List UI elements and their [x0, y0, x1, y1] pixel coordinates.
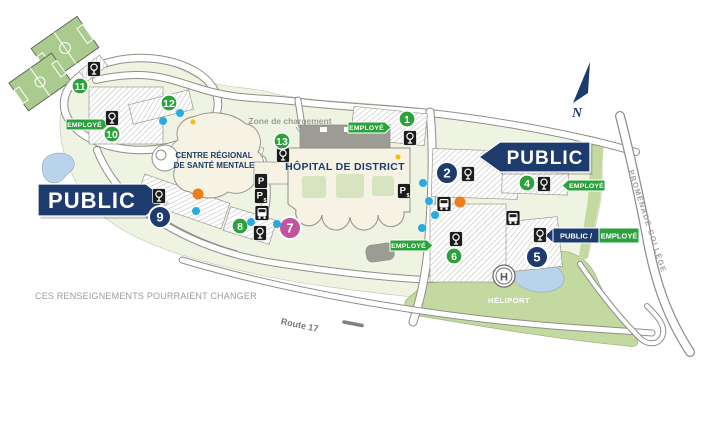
- blue-entrance-dot: [176, 109, 184, 117]
- lot-number: 5: [533, 250, 540, 265]
- parking-meter-icon: [153, 189, 166, 204]
- heliport-label: HÉLIPORT: [488, 296, 530, 305]
- lot-number: 2: [443, 166, 450, 181]
- parking-icon: P: [255, 174, 268, 189]
- lot-marker-11: 11: [72, 78, 88, 94]
- lot-number: 11: [74, 81, 85, 93]
- public-banner-label: PUBLIC: [507, 148, 584, 169]
- paid-parking-dollar: $: [263, 198, 266, 204]
- lot-marker-10: 10: [104, 126, 120, 142]
- lot-number: 1: [404, 114, 410, 126]
- blue-entrance-dot: [419, 179, 427, 187]
- paid-parking-icon: P$: [255, 189, 268, 205]
- lot-number: 6: [451, 251, 457, 263]
- employe-badge: EMPLOYÉ: [562, 180, 605, 191]
- courtyard: [336, 174, 364, 198]
- lot-marker-1: 1: [399, 111, 415, 127]
- lot-number: 12: [163, 98, 175, 110]
- combo-badge-employe-label: EMPLOYÉ: [601, 232, 638, 241]
- mental-health-label-line2: DE SANTÉ MENTALE: [174, 161, 255, 170]
- pond-west: [42, 153, 74, 183]
- employe-badge: EMPLOYÉ: [348, 122, 391, 133]
- lot-marker-13: 13: [274, 133, 290, 149]
- bus-stop-icon: [255, 206, 269, 221]
- parking-meter-icon: [450, 232, 463, 247]
- orange-entrance-dot: [193, 189, 204, 200]
- parking-meter-icon: [462, 167, 475, 182]
- bus-stop-icon: [506, 211, 520, 226]
- paid-parking-icon: P$: [398, 184, 411, 200]
- lot-marker-6: 6: [446, 248, 462, 264]
- loading-zone-label: Zone de chargement: [248, 116, 331, 126]
- lot-number: 10: [106, 129, 118, 141]
- lot-marker-4: 4: [519, 175, 535, 191]
- orange-entrance-dot: [455, 197, 466, 208]
- employe-badge-label: EMPLOYÉ: [569, 181, 604, 190]
- yellow-dot: [191, 120, 196, 125]
- lot-number: 4: [524, 178, 530, 190]
- courtyard: [302, 176, 326, 198]
- blue-entrance-dot: [431, 211, 439, 219]
- parking-meter-icon: [404, 131, 417, 146]
- blue-entrance-dot: [273, 220, 281, 228]
- hospital-parking-map: H N Zone de chargement HÔPITAL DE DISTRI…: [0, 0, 720, 426]
- employe-badge: EMPLOYÉ: [66, 119, 109, 130]
- employe-badge: EMPLOYÉ: [390, 240, 433, 251]
- public-employe-badge: PUBLIC /EMPLOYÉ: [545, 228, 639, 243]
- parking-meter-icon: [106, 111, 119, 126]
- disclaimer-label: CES RENSEIGNEMENTS POURRAIENT CHANGER: [35, 291, 257, 301]
- bus-stop-icon: [437, 197, 451, 212]
- lot-number: 8: [237, 221, 243, 233]
- employe-badge-label: EMPLOYÉ: [67, 120, 102, 129]
- blue-entrance-dot: [192, 207, 200, 215]
- lot-number: 9: [156, 210, 163, 225]
- public-banner-label: PUBLIC: [48, 188, 136, 213]
- mental-health-label-line1: CENTRE RÉGIONAL: [175, 151, 252, 160]
- blue-entrance-dot: [418, 224, 426, 232]
- blue-entrance-dot: [247, 218, 255, 226]
- employe-badge-label: EMPLOYÉ: [349, 123, 384, 132]
- heliport-symbol: H: [500, 272, 508, 284]
- hospital-parking-map-page: H N Zone de chargement HÔPITAL DE DISTRI…: [0, 0, 720, 426]
- lot-marker-12: 12: [161, 95, 177, 111]
- lot-number: 13: [276, 136, 288, 148]
- parking-meter-icon: [534, 228, 547, 243]
- north-arrow-icon: [573, 62, 590, 103]
- hospital-label: HÔPITAL DE DISTRICT: [285, 160, 405, 173]
- employe-badge-label: EMPLOYÉ: [391, 241, 426, 250]
- dock-bay: [320, 127, 327, 132]
- parking-meter-icon: [538, 177, 551, 192]
- north-label: N: [571, 106, 583, 121]
- lot-marker-9: 9: [149, 206, 171, 228]
- blue-entrance-dot: [159, 117, 167, 125]
- lot-marker-2: 2: [436, 162, 458, 184]
- parking-meter-icon: [254, 226, 267, 241]
- courtyard: [372, 176, 394, 196]
- lot-number: 7: [286, 221, 293, 236]
- lot-marker-5: 5: [526, 246, 548, 268]
- parking-meter-icon: [88, 62, 101, 77]
- route17-label: Route 17: [280, 316, 319, 334]
- blue-entrance-dot: [425, 197, 433, 205]
- parking-p: P: [258, 176, 265, 187]
- public-banner: PUBLIC: [479, 142, 593, 175]
- paid-parking-dollar: $: [406, 193, 409, 199]
- lot-marker-7: 7: [279, 217, 301, 239]
- yellow-dot: [396, 155, 401, 160]
- lot-marker-8: 8: [232, 218, 248, 234]
- combo-badge-public-label: PUBLIC /: [560, 232, 593, 241]
